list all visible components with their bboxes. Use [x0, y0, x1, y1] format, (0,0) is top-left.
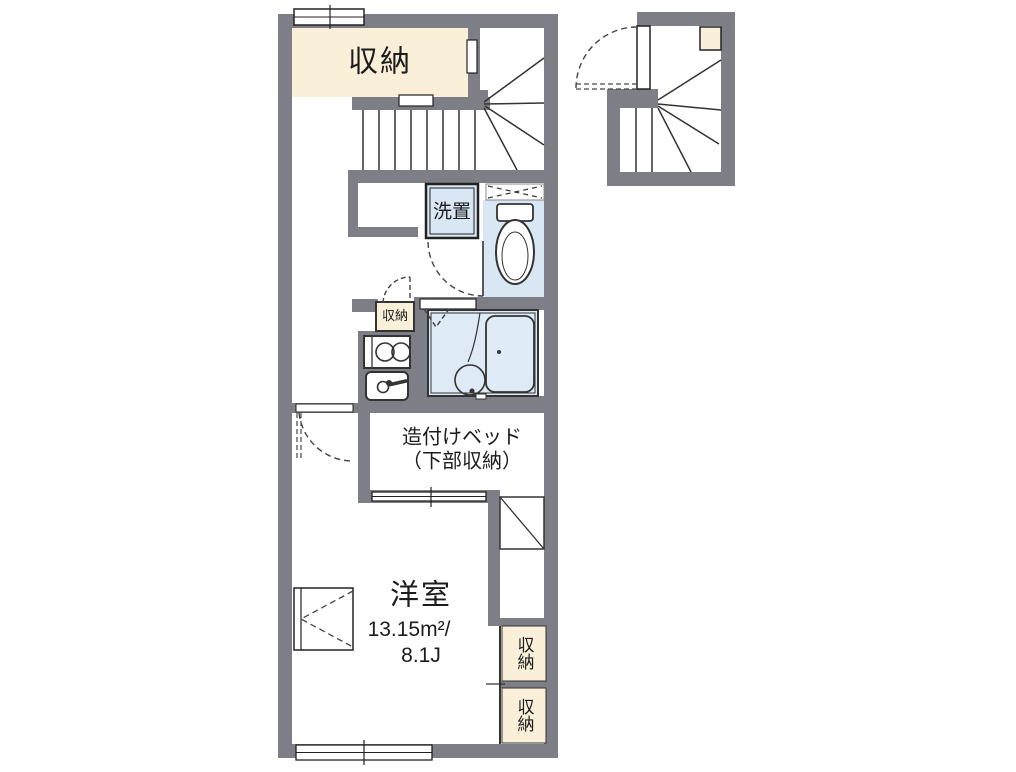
storage-side-door: [467, 40, 477, 73]
entrance-door: [637, 26, 650, 89]
small-storage-door: [383, 277, 410, 303]
room-entry-door: [297, 413, 353, 461]
room-area-sqm: 13.15m²/: [368, 617, 451, 643]
room-name-label: 洋室: [390, 578, 452, 613]
closet-upper-label: 収納: [516, 636, 533, 670]
storage-door: [399, 95, 433, 106]
toilet-door: [428, 241, 483, 296]
built-in-bed-label: 造付けベッド （下部収納）: [402, 426, 522, 475]
bath-door-opening: [420, 299, 476, 309]
floorplan-drawing: [0, 0, 1016, 772]
stairwell-closet: [700, 27, 721, 50]
window-left-casement: [294, 588, 353, 650]
window-bottom: [296, 740, 432, 765]
window-top: [294, 5, 364, 29]
storage-top-label: 収納: [348, 45, 412, 82]
room-door-opening: [296, 404, 353, 412]
bathtub-icon: [486, 316, 534, 392]
toilet-vent-window: [486, 184, 544, 200]
room-area-tatami: 8.1J: [401, 643, 441, 669]
washer-stand-label: 洗置: [433, 200, 471, 223]
entrance-door-swing: [576, 27, 637, 89]
storage-small-label: 収納: [382, 308, 408, 324]
bathroom: [428, 310, 538, 399]
toilet-icon: [496, 204, 534, 284]
floorplan: 収納 洗置 収納 造付けベッド （下部収納） 洋室 13.15m²/ 8.1J …: [0, 0, 1016, 772]
sink-icon: [366, 372, 408, 400]
bed-label-line2: （下部収納）: [402, 450, 522, 474]
bed-label-line1: 造付けベッド: [402, 426, 522, 450]
stove-icon: [364, 336, 410, 368]
closet-lower-label: 収納: [516, 698, 533, 732]
